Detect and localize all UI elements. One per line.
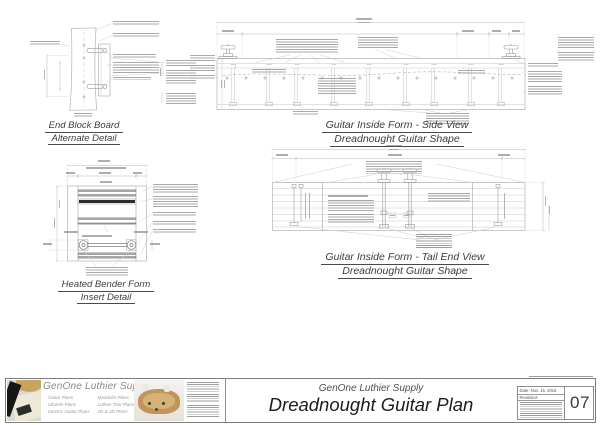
rotated-dimension-label [221,80,222,88]
product-categories: Guitar Plans Ukulele Plans Electric Guit… [48,394,140,415]
rotated-annotation [309,193,310,219]
rotated-dimension-label [160,68,161,76]
annotation-note [113,21,159,26]
bender-form-drawing [50,164,152,266]
annotation-note [86,267,128,276]
dimension-label [389,149,399,151]
rotated-annotation [504,193,505,219]
annotation-note [528,71,562,83]
annotation-note [528,86,562,95]
dimension-label [356,18,372,20]
title-line: End Block Board [45,120,124,133]
fine-print-paragraph [187,382,219,392]
rotated-dimension-label [545,196,546,206]
annotation-note [82,235,112,237]
dimension-lines [50,164,152,262]
info-box: Date: Nov. 15, 2016 Revisions 07 [517,386,594,420]
dimension-label [98,160,110,162]
dimension-label [462,30,474,32]
pivot-bolt [127,241,136,250]
annotation-note [558,37,594,49]
technical-drawing-linework [0,0,600,378]
annotation-note [416,234,452,249]
form-bolts [290,184,502,225]
annotation-note [190,55,215,62]
title-line: Guitar Inside Form - Side View [322,119,473,133]
info-box-rule [518,400,564,401]
revisions-label: Revisions [520,395,538,400]
dimension-label [150,243,160,245]
annotation-note [318,78,356,94]
annotation-note [166,93,196,105]
dimension-label [492,30,501,32]
dimension-label [222,30,234,32]
fine-print-paragraph [187,405,219,418]
annotation-note [153,212,196,217]
dimension-label [66,172,75,174]
title-block-center: GenOne Luthier Supply Dreadnought Guitar… [226,379,516,422]
dimension-label [276,154,288,156]
rotated-dimension-label [549,206,550,214]
end-block-view-title: End Block Board Alternate Detail [24,120,144,145]
annotation-note [190,65,215,72]
sheet-number: 07 [565,393,595,413]
annotation-note [153,196,198,208]
title-block: GenOne Luthier Supplies Guitar Plans Uku… [5,378,596,423]
annotation-note [328,214,374,223]
dimension-label [512,30,520,32]
form-clamp-highlight [142,384,148,391]
category-item: Guitar Plans [48,394,91,401]
form-bolt-dots [148,402,151,405]
bender-view-title: Heated Bender Form Insert Detail [46,279,166,304]
dimension-label [99,172,111,174]
date-label: Date: Nov. 15, 2016 [520,388,557,393]
leader-lines [273,164,525,240]
company-name: GenOne Luthier Supply [226,383,516,394]
category-item: Electric Guitar Plans [48,408,91,415]
annotation-note [276,39,338,54]
title-line: Guitar Inside Form - Tail End View [321,251,488,265]
annotation-note [113,77,151,80]
rotated-dimension-label [224,80,225,88]
drawing-sheet: End Block Board Alternate Detail Guitar … [0,0,600,425]
annotation-note [558,52,594,62]
annotation-note [458,70,485,75]
centerline-plus-marks [225,76,514,80]
sheet-number-cell: 07 [565,387,595,419]
center-clamp-knobs [377,168,417,229]
dimension-label [133,172,142,174]
annotation-note [153,221,196,226]
leader-lines [84,187,152,267]
title-line: Insert Detail [77,292,136,305]
annotation-note [190,75,215,80]
title-line: Dreadnought Guitar Shape [330,133,464,147]
rotated-dimension-label [44,70,45,79]
side-view-drawing [216,21,527,113]
guitar-form-photo [134,380,184,421]
annotation-note [153,229,196,234]
annotation-note [153,184,198,193]
annotation-note [428,193,470,202]
annotation-note [113,54,156,59]
leader-lines [216,50,527,114]
rotated-dimension-label [59,200,60,208]
dimension-label [64,231,78,233]
side-view-title: Guitar Inside Form - Side View Dreadnoug… [297,119,497,147]
wood-form-inner [143,393,175,409]
pivot-bolt [79,241,88,250]
annotation-note [528,63,558,68]
dimension-label [74,113,92,118]
annotation-note [328,195,368,197]
annotation-note [113,33,159,38]
title-line: Alternate Detail [48,133,121,146]
title-line: Dreadnought Guitar Shape [338,265,472,279]
annotation-note [328,200,374,211]
dimension-label [43,243,52,245]
rotated-dimension-label [54,218,55,228]
info-box-left: Date: Nov. 15, 2016 Revisions [518,387,565,419]
dimension-label [86,167,126,169]
dimension-label [404,215,409,217]
annotation-note [30,41,60,46]
fine-print-paragraph [187,394,219,403]
dimension-label [134,231,148,233]
notes-paragraph [520,402,562,418]
category-item: Ukulele Plans [48,401,91,408]
plan-title: Dreadnought Guitar Plan [226,394,516,416]
logo-photo [7,380,41,421]
annotation-note [358,37,398,49]
dimension-label [388,154,402,156]
dimension-label [358,22,370,24]
annotation-note [252,69,286,74]
heating-blanket-bar [79,200,135,203]
annotation-note [366,161,422,174]
dimension-label [498,154,510,156]
dimension-label [390,215,395,217]
title-line: Heated Bender Form [58,279,155,292]
annotation-note [113,62,159,74]
annotation-note [293,111,318,116]
dimension-label [100,181,112,183]
tail-view-title: Guitar Inside Form - Tail End View Dread… [300,251,510,279]
rotated-annotation [305,193,306,219]
